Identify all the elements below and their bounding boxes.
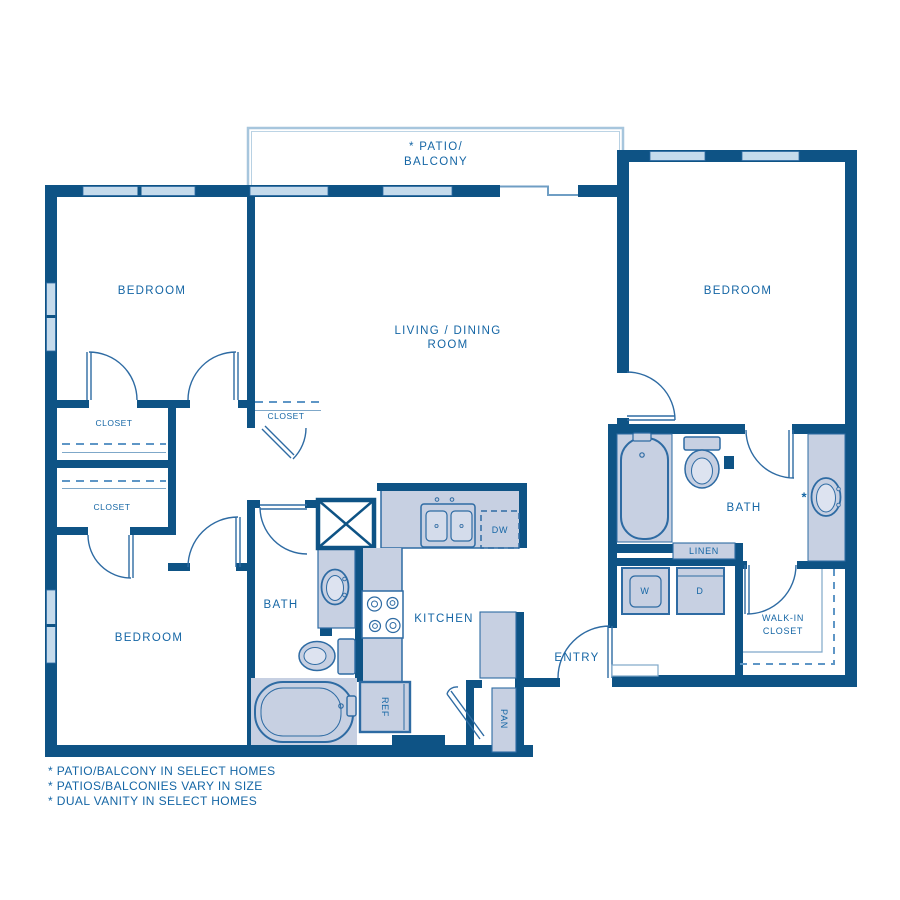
washer-label: W (640, 586, 649, 596)
dishwasher-label: DW (492, 525, 508, 535)
walk-in-closet-label-line1: WALK-IN (762, 613, 804, 623)
dryer-label: D (696, 586, 703, 596)
pantry-label: PAN (499, 709, 509, 729)
bath-middle-label: BATH (263, 599, 298, 611)
entry-threshold (612, 665, 658, 676)
washer-dryer (622, 568, 724, 614)
patio-balcony-label-line1: * PATIO/ (409, 141, 463, 153)
bedroom-top-left-label: BEDROOM (118, 285, 187, 297)
walk-in-closet-label-line2: CLOSET (763, 626, 803, 636)
closet-left-lower-label: CLOSET (93, 502, 130, 512)
kitchen-label: KITCHEN (414, 613, 474, 625)
patio-balcony-label-line2: BALCONY (404, 156, 468, 168)
right-bath-fixtures (617, 433, 845, 561)
dual-vanity-asterisk: * (801, 490, 806, 505)
entry-label: ENTRY (554, 652, 599, 664)
closet-left-upper-label: CLOSET (95, 418, 132, 428)
closet-hall-label: CLOSET (267, 411, 304, 421)
refrigerator-label: REF (380, 697, 390, 717)
living-dining-label-line1: LIVING / DINING (394, 325, 501, 337)
x-cabinet (318, 500, 374, 548)
bedroom-top-right-label: BEDROOM (704, 285, 773, 297)
bedroom-bottom-left-label: BEDROOM (115, 632, 184, 644)
footnote-patios-vary: * PATIOS/BALCONIES VARY IN SIZE (48, 779, 263, 793)
linen-label: LINEN (689, 546, 719, 556)
footnote-dual-vanity: * DUAL VANITY IN SELECT HOMES (48, 794, 257, 808)
walls (45, 150, 857, 757)
floor-plan: * PATIO/ BALCONY BEDROOM BEDROOM BEDROOM… (0, 0, 900, 900)
sliding-door (500, 187, 578, 196)
bath-right-label: BATH (726, 502, 761, 514)
middle-bath-fixtures (251, 548, 357, 745)
living-dining-label-line2: ROOM (428, 339, 469, 351)
footnote-patio-balcony: * PATIO/BALCONY IN SELECT HOMES (48, 764, 276, 778)
